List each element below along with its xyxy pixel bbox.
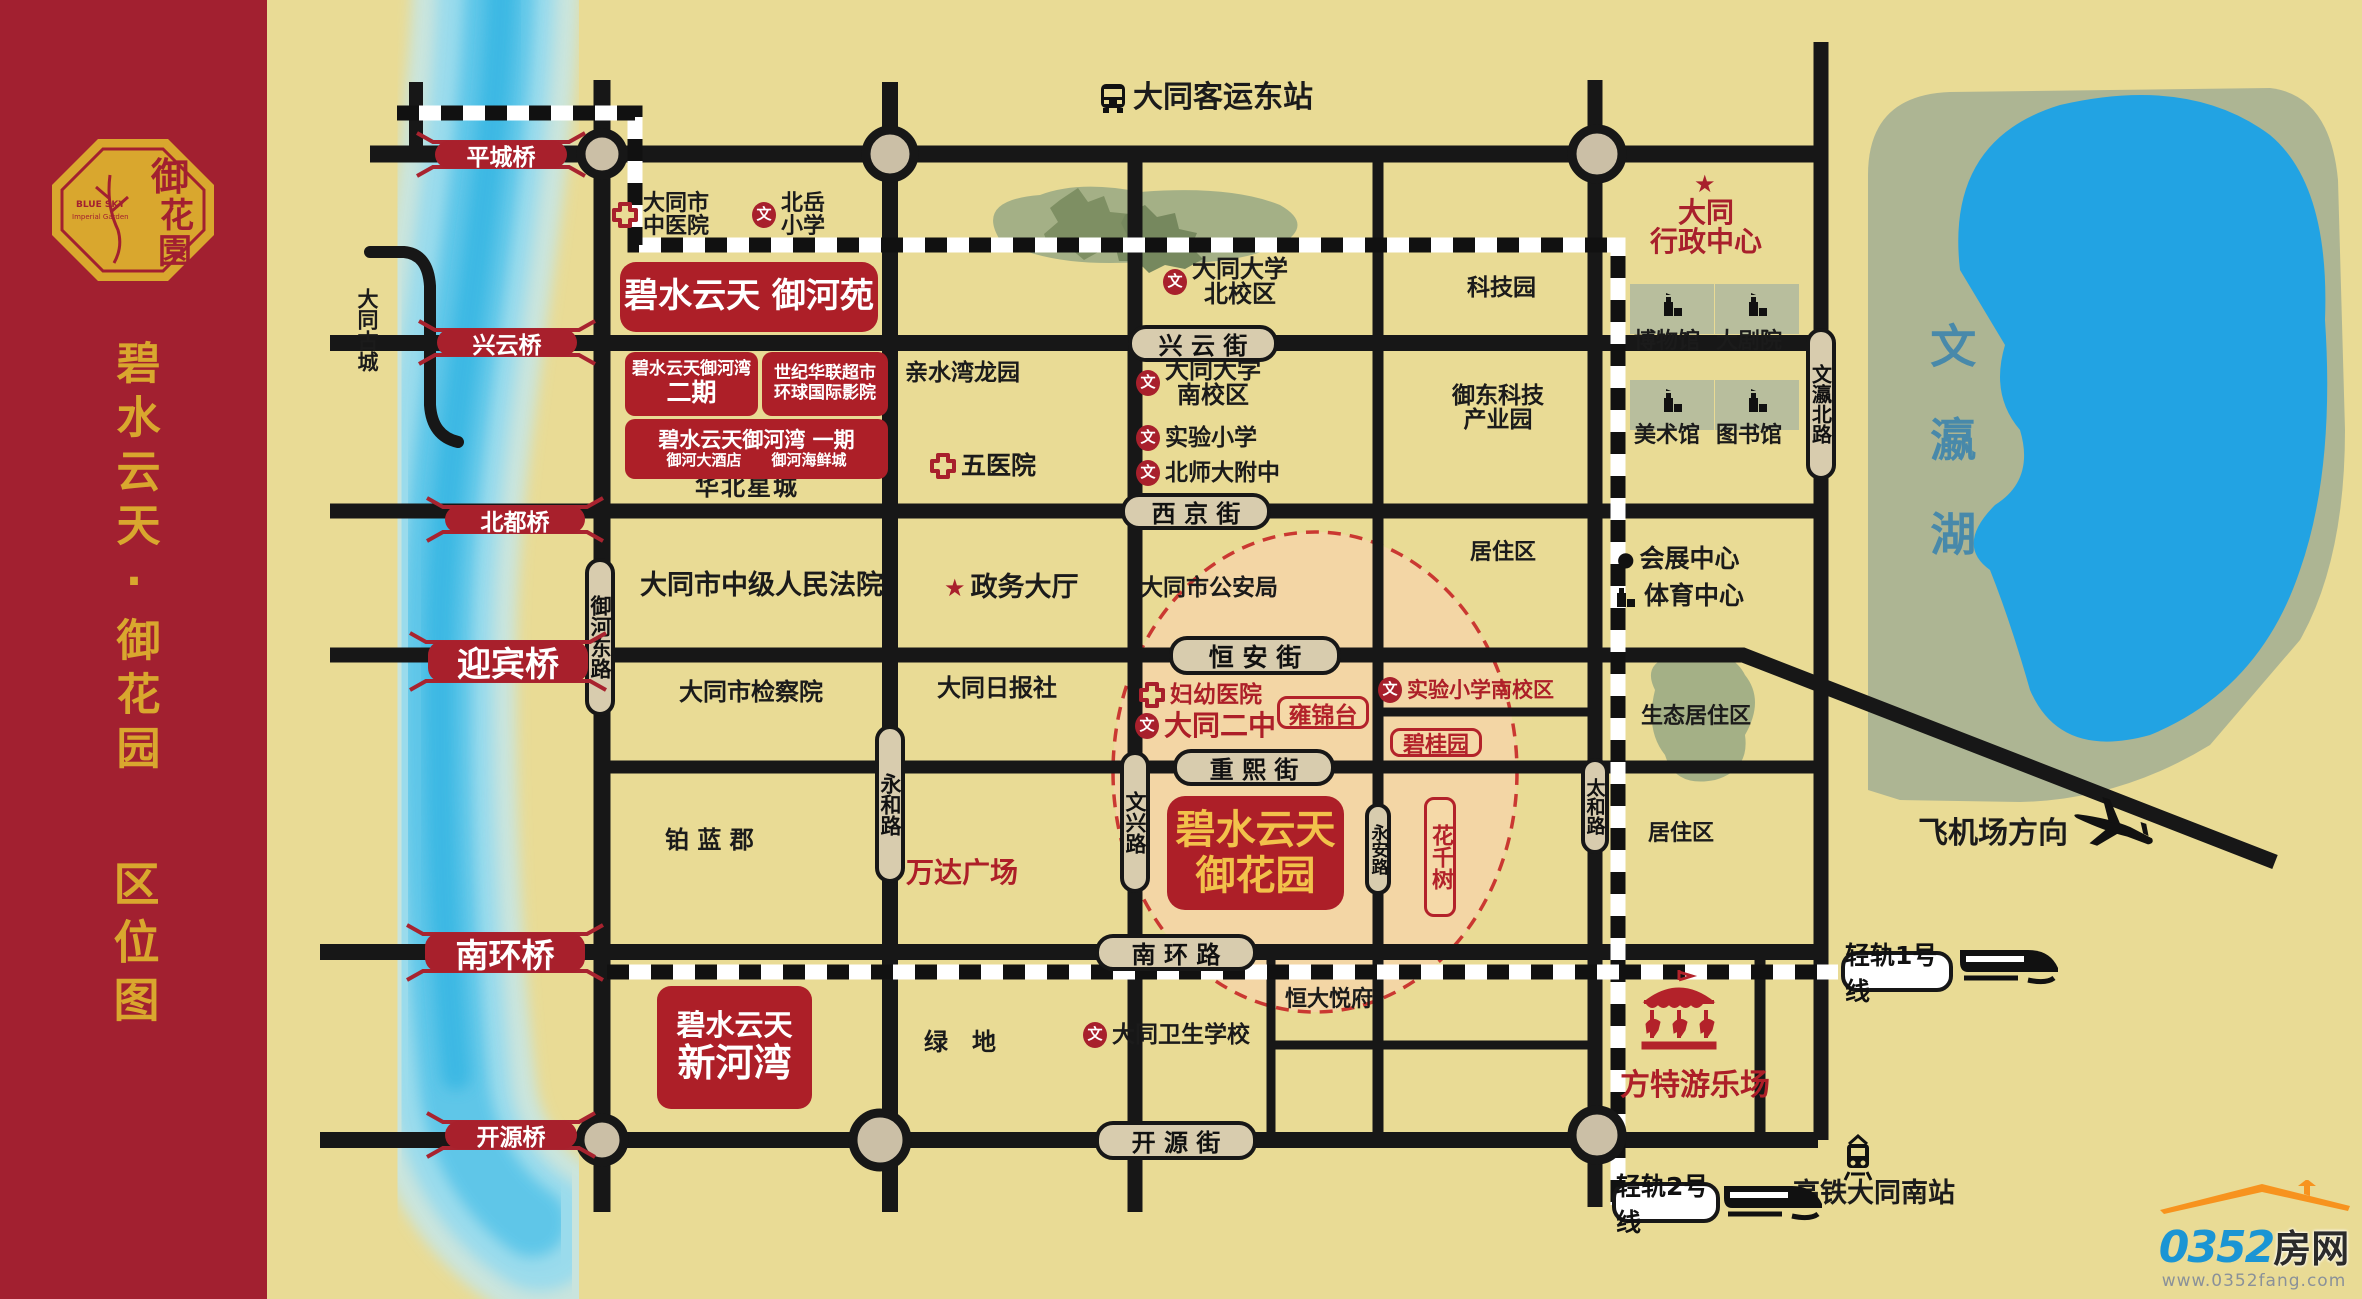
poi-text: 政务大厅 [971,574,1079,602]
logo-en-1: BLUE SKY [76,200,125,210]
map-labels-layer: 兴 云 街西 京 街恒 安 街重 熙 街南 环 路开 源 街御河东路永和路文兴路… [0,0,2362,1299]
building-icon [1745,292,1771,318]
school-wen-icon: 文 [1163,269,1187,295]
poi-text: 方特游乐场 [1620,1070,1770,1102]
poi-hengda: 恒大悦府 [1285,988,1373,1011]
street-label-南环路: 南 环 路 [1095,934,1257,971]
poi-text: 北师大附中 [1165,461,1280,485]
poi-shiyan-south: 文实验小学南校区 [1378,677,1554,703]
train-icon [1722,1176,1824,1224]
carousel-icon [1634,968,1724,1054]
poi-train1 [1958,940,2060,988]
hospital-cross-icon [612,202,638,228]
building-icon [1745,388,1771,414]
poi-text: 万达广场 [906,858,1018,887]
red-box-line: 碧水云天 [1176,807,1336,853]
school-wen-icon: 文 [1136,460,1160,486]
street-label-兴云街: 兴 云 街 [1128,325,1278,362]
building-icon [1613,583,1639,609]
poi-datong-univ-south: 文大同大学南校区 [1136,358,1261,408]
outline-box-花千树: 花千树 [1424,797,1456,917]
poi-meishuguan: 美术馆 [1634,424,1700,447]
poi-text: 铂 蓝 郡 [665,828,754,853]
poi-text: 大同市公安局 [1140,576,1278,600]
bus-icon [1098,82,1128,114]
poi-beiyue: 文北岳小学 [752,192,825,238]
transit-label-轻轨2号线: 轻轨2号线 [1612,1182,1720,1223]
poi-jianchayuan: 大同市检察院 [679,680,823,705]
poi-gucheng: 大同古城 [356,288,378,372]
bridge-label-迎宾桥: 迎宾桥 [428,641,588,682]
poi-tiyu: 体育中心 [1613,583,1744,609]
logo-char-hua: 花 [160,196,194,236]
poi-text: 体育中心 [1644,583,1744,609]
street-label-太和路: 太和路 [1581,758,1609,854]
poi-xingzheng-star: ★ [1694,172,1716,196]
poi-huizhan: ●会展中心 [1617,546,1739,572]
poi-text: 美术馆 [1634,424,1700,447]
logo-char-yuan: 園 [158,232,192,272]
red-box-line: 环球国际影院 [774,384,876,404]
school-wen-icon: 文 [1083,1022,1107,1048]
school-wen-icon: 文 [1136,425,1160,451]
poi-text: 实验小学 [1165,426,1257,450]
star-icon: ★ [944,576,966,600]
red-box-line: 新河湾 [677,1042,791,1086]
red-box-line: 碧水云天御河湾 [632,360,751,380]
poi-mus-ic-3 [1660,388,1686,414]
hospital-cross-icon [930,453,956,479]
poi-text: 博物馆 [1634,330,1700,353]
school-wen-icon: 文 [1135,713,1159,739]
site-logo: 0352房网 www.0352fang.com [2154,1180,2354,1291]
poi-fangte-icon [1634,968,1724,1054]
poi-juzhuqu-2: 居住区 [1648,822,1714,845]
dot-icon: ● [1617,549,1634,569]
poi-train2 [1722,1176,1824,1224]
poi-keji-park: 科技园 [1467,276,1536,300]
poi-text: 科技园 [1467,276,1536,300]
transit-label-轻轨1号线: 轻轨1号线 [1841,951,1953,992]
bridge-label-开源桥: 开源桥 [445,1121,577,1149]
airplane-icon [2068,786,2160,866]
site-logo-cn: 房网 [2273,1218,2349,1273]
red-box: 碧水云天 御河苑 [620,262,878,332]
poi-text: 文瀛湖 [1926,322,1974,604]
logo-char-yu: 御 [150,155,189,199]
banner-title: 碧水云天·御花园 [102,340,166,779]
red-box-line: 碧水云天御河湾 一期 [658,428,854,452]
poi-airport-plane [2068,786,2160,866]
poi-text: 大同二中 [1164,711,1276,740]
poi-text: 会展中心 [1639,546,1739,572]
poi-hsr-icon [1843,1134,1873,1182]
red-box-line: 世纪华联超市 [774,364,876,384]
poi-zhongyiyuan: 大同市中医院 [612,192,709,238]
red-box-line: 御河大酒店 御河海鲜城 [666,452,846,469]
poi-bowuguan: 博物馆 [1634,330,1700,353]
poi-datong-univ-north: 文大同大学北校区 [1163,257,1288,307]
building-icon [1660,292,1686,318]
poi-text: 大同卫生学校 [1112,1023,1250,1047]
poi-text: 大同客运东站 [1133,82,1313,114]
poi-text: 飞机场方向 [1918,818,2068,850]
poi-bus-station: 大同客运东站 [1098,82,1313,114]
poi-shiyan-primary: 文实验小学 [1136,425,1257,451]
red-box-line: 御花园 [1196,853,1316,899]
poi-tushuguan: 图书馆 [1716,424,1782,447]
poi-text: 五医院 [961,453,1036,479]
red-box-line: 二期 [666,379,716,408]
poi-qinshuiwan: 亲水湾龙园 [905,361,1020,385]
location-map-poster: 兴 云 街西 京 街恒 安 街重 熙 街南 环 路开 源 街御河东路永和路文兴路… [0,0,2362,1299]
poi-text: 大同行政中心 [1650,198,1762,257]
bridge-label-平城桥: 平城桥 [435,141,567,168]
poi-text: 北岳小学 [781,192,825,238]
poi-text: 大同市中医院 [643,192,709,238]
red-box: 碧水云天新河湾 [657,986,812,1109]
site-logo-number: 0352 [2159,1222,2273,1273]
poi-wuyiyuan: 五医院 [930,453,1036,479]
poi-text: 大同市中级人民法院 [640,572,883,600]
poi-police: 大同市公安局 [1140,576,1278,600]
red-box: 碧水云天御河湾二期 [625,352,758,416]
poi-text: 大剧院 [1716,330,1782,353]
poi-dajuyuan: 大剧院 [1716,330,1782,353]
poi-text: 大同市检察院 [679,680,823,705]
red-box-line: 碧水云天 御河苑 [624,277,874,316]
site-logo-url[interactable]: www.0352fang.com [2154,1271,2354,1291]
poi-text: 亲水湾龙园 [905,361,1020,385]
red-box: 碧水云天御花园 [1167,796,1344,910]
poi-weisheng-school: 文大同卫生学校 [1083,1022,1250,1048]
poi-text: 图书馆 [1716,424,1782,447]
bridge-label-兴云桥: 兴云桥 [437,329,577,356]
poi-text: 实验小学南校区 [1407,679,1554,701]
poi-text: 大同大学南校区 [1165,358,1261,408]
poi-bolanjun: 铂 蓝 郡 [665,828,754,853]
logo-en-2: Imperial Garden [72,213,129,221]
red-box-line: 碧水云天 [676,1009,792,1042]
street-label-恒安街: 恒 安 街 [1169,636,1341,675]
street-label-文瀛北路: 文瀛北路 [1806,328,1836,480]
street-label-永和路: 永和路 [875,725,905,883]
poi-mus-ic-2 [1745,292,1771,318]
poi-juzhuqu-1: 居住区 [1470,541,1536,564]
poi-text: 居住区 [1470,541,1536,564]
poi-mus-ic-4 [1745,388,1771,414]
street-label-重熙街: 重 熙 街 [1173,749,1335,786]
poi-xingzheng: 大同行政中心 [1650,198,1762,257]
poi-text: 大同古城 [356,288,378,372]
hospital-cross-icon [1139,682,1165,708]
poi-beishida: 文北师大附中 [1136,460,1280,486]
street-label-文兴路: 文兴路 [1120,751,1150,893]
poi-shengtai: 生态居住区 [1641,705,1751,728]
banner-subtitle: 区位图 [101,860,167,1034]
outline-box-碧桂园: 碧桂园 [1390,728,1482,757]
school-wen-icon: 文 [1378,677,1402,703]
building-icon [1660,388,1686,414]
red-box: 世纪华联超市环球国际影院 [762,352,888,416]
star-icon: ★ [1694,172,1716,196]
train-icon [1958,940,2060,988]
bridge-label-北都桥: 北都桥 [445,506,585,533]
poi-fuyou: 妇幼医院 [1139,682,1262,708]
poi-text: 妇幼医院 [1170,683,1262,707]
brand-logo-octagon: 御 花 園 BLUE SKY Imperial Garden [48,135,218,285]
street-label-西京街: 西 京 街 [1121,493,1271,530]
street-label-永安路: 永安路 [1365,803,1391,895]
poi-text: 生态居住区 [1641,705,1751,728]
poi-text: 大同大学北校区 [1192,257,1288,307]
bridge-label-南环桥: 南环桥 [425,933,585,972]
poi-fangte: 方特游乐场 [1620,1070,1770,1102]
poi-lvdi: 绿 地 [924,1030,996,1055]
poi-airport: 飞机场方向 [1918,818,2068,850]
poi-yudong-keji: 御东科技产业园 [1452,384,1544,432]
poi-text: 恒大悦府 [1285,988,1373,1011]
poi-text: 居住区 [1648,822,1714,845]
poi-text: 大同日报社 [937,676,1057,701]
hsr-station-icon [1843,1134,1873,1182]
poi-datong-erzhong: 文大同二中 [1135,711,1276,740]
school-wen-icon: 文 [752,202,776,228]
brand-banner: 御 花 園 BLUE SKY Imperial Garden 碧水云天·御花园 … [0,0,267,1299]
red-box: 碧水云天御河湾 一期御河大酒店 御河海鲜城 [625,419,888,479]
poi-text: 绿 地 [924,1030,996,1055]
poi-mus-ic-1 [1660,292,1686,318]
poi-ribao: 大同日报社 [937,676,1057,701]
poi-text: 御东科技产业园 [1452,384,1544,432]
site-logo-roof-icon [2154,1180,2354,1214]
poi-lake-label: 文瀛湖 [1926,322,1974,604]
poi-wanda: 万达广场 [906,858,1018,887]
poi-court: 大同市中级人民法院 [640,572,883,600]
outline-box-雍锦台: 雍锦台 [1277,696,1369,729]
street-label-开源街: 开 源 街 [1095,1121,1257,1160]
school-wen-icon: 文 [1136,370,1160,396]
poi-zhengwu: ★政务大厅 [944,574,1079,602]
